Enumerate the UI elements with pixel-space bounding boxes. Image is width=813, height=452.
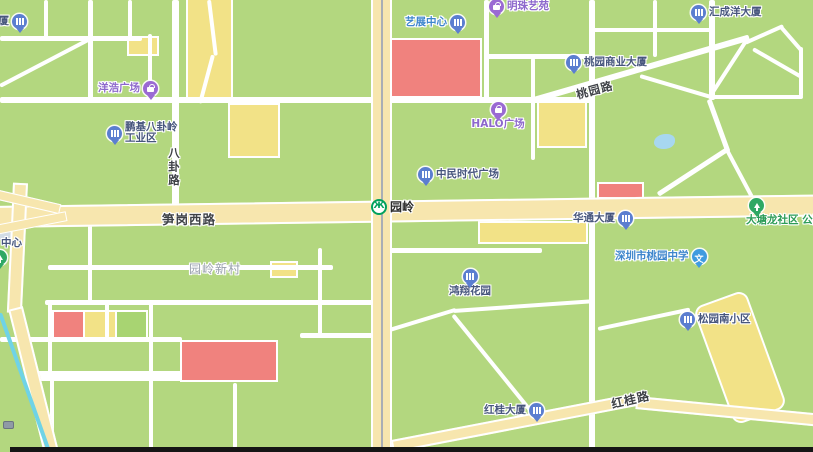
road-segment [372, 248, 542, 253]
tree-glyph [0, 252, 3, 260]
shopping-bag-icon [491, 102, 506, 117]
poi-label: 松园南小区 [698, 314, 751, 325]
building-glyph [111, 130, 119, 137]
bottom-bar [10, 447, 813, 452]
poi-taoyuan-middle-school[interactable]: 深圳市桃园中学 [615, 249, 707, 264]
road-segment [318, 248, 322, 338]
poi-huatong-tower[interactable]: 华通大厦 [573, 211, 633, 226]
metro-logo-icon [371, 199, 387, 215]
education-icon [692, 249, 707, 264]
poi-label: 大厦 [0, 16, 9, 27]
building-glyph [422, 171, 430, 178]
area-label-yuanling-xincun: 园岭新村 [189, 260, 241, 277]
road-segment [453, 299, 593, 313]
road-segment [598, 308, 691, 331]
road-segment [88, 0, 93, 101]
vehicle-icon [3, 421, 14, 429]
poi-label: 华通大厦 [573, 213, 615, 224]
building-icon [463, 269, 478, 284]
road-centerline [381, 0, 383, 452]
road-segment [128, 0, 132, 38]
tree-glyph [754, 200, 760, 208]
poi-label: 中民时代广场 [436, 169, 499, 180]
poi-huichengyang-tower[interactable]: 汇成洋大厦 [691, 5, 762, 20]
road-segment [711, 95, 803, 99]
road-segment [752, 47, 802, 78]
land-parcel-red [180, 340, 278, 382]
road-label-bagua: 八卦路 [166, 147, 182, 188]
road-segment [725, 149, 754, 199]
poi-mingzhu-yiyuan[interactable]: 明珠艺苑 [489, 0, 549, 14]
building-icon [529, 403, 544, 418]
road-segment [639, 74, 715, 100]
building-glyph [533, 407, 541, 414]
road-segment [105, 300, 109, 338]
building-icon [12, 14, 27, 29]
poi-label: 深圳市桃园中学 [615, 251, 689, 262]
compound-cell-red [54, 312, 83, 339]
station-yuanling[interactable]: 园岭 [371, 198, 414, 215]
station-label: 园岭 [390, 198, 414, 215]
poi-datanglong-park[interactable]: 大塘龙社区 公园 [746, 198, 813, 226]
poi-dasha-partial[interactable]: 大厦 [0, 14, 27, 29]
building-icon [107, 126, 122, 141]
wen-glyph [694, 247, 703, 266]
bag-glyph [147, 87, 154, 93]
tree-icon [0, 250, 7, 265]
poi-zhongmin-times-plaza[interactable]: 中民时代广场 [418, 167, 499, 182]
building-icon [450, 15, 465, 30]
poi-hongxiang-garden[interactable]: 鸿翔花园 [448, 269, 492, 297]
tree-icon [749, 198, 764, 213]
road-segment [233, 383, 237, 448]
building-glyph [570, 59, 578, 66]
poi-label: 中心 [1, 238, 22, 249]
bag-glyph [493, 5, 500, 11]
building-icon [566, 55, 581, 70]
poi-honggui-tower[interactable]: 红桂大厦 [484, 403, 544, 418]
shopping-bag-icon [143, 81, 158, 96]
compound-cell-yellow [85, 312, 114, 339]
road-segment [0, 36, 93, 88]
road-segment [44, 0, 48, 38]
building-glyph [16, 18, 24, 25]
road-segment [657, 147, 730, 197]
poi-label: 桃园商业大厦 [584, 57, 647, 68]
building-glyph [466, 273, 474, 280]
land-parcel-yellow [228, 103, 280, 158]
poi-label: 汇成洋大厦 [709, 7, 762, 18]
poi-label: 明珠艺苑 [507, 1, 549, 12]
building-icon [680, 312, 695, 327]
road-segment [45, 300, 375, 305]
road-honggui [635, 396, 813, 426]
land-parcel-yellow [537, 97, 587, 148]
building-icon [618, 211, 633, 226]
poi-label: 工业区 [125, 133, 178, 144]
poi-pengji-baguling[interactable]: 鹏基八卦岭 工业区 [107, 122, 178, 144]
poi-yizhan-center[interactable]: 艺展中心 [405, 15, 465, 30]
map-canvas[interactable]: 笋岗西路 八卦路 桃园路 红桂路 园岭新村 园岭 大厦 洋浩广场 鹏基八卦岭 工… [0, 0, 813, 452]
compound-cell-green [117, 312, 146, 339]
building-glyph [695, 9, 703, 16]
road-segment [593, 28, 711, 32]
road-segment [744, 24, 784, 45]
land-parcel-yellow [478, 221, 588, 244]
road-segment [799, 47, 803, 97]
building-glyph [454, 19, 462, 26]
building-icon [418, 167, 433, 182]
road-segment [707, 99, 731, 153]
bag-glyph [495, 108, 502, 114]
poi-label: 艺展中心 [405, 17, 447, 28]
shopping-bag-icon [489, 0, 504, 14]
road-segment [484, 0, 489, 99]
road-segment [531, 58, 535, 160]
pond-water [654, 134, 675, 149]
road-vertical-main [371, 0, 392, 452]
poi-taoyuan-commercial-tower[interactable]: 桃园商业大厦 [566, 55, 647, 70]
land-parcel-red [385, 38, 482, 98]
road-segment [88, 220, 92, 302]
building-glyph [684, 316, 692, 323]
poi-label-group: 鹏基八卦岭 工业区 [125, 122, 178, 144]
poi-yanghao-plaza[interactable]: 洋浩广场 [98, 81, 158, 96]
poi-center-partial[interactable]: 中心 [1, 238, 22, 249]
building-glyph [622, 215, 630, 222]
poi-label: 洋浩广场 [98, 83, 140, 94]
road-label-sungang-west: 笋岗西路 [162, 209, 216, 228]
poi-halo-plaza[interactable]: HALO广场 [473, 102, 523, 130]
road-segment [300, 333, 374, 338]
poi-label: 红桂大厦 [484, 405, 526, 416]
poi-songyuan-south-estate[interactable]: 松园南小区 [680, 312, 751, 327]
building-icon [691, 5, 706, 20]
